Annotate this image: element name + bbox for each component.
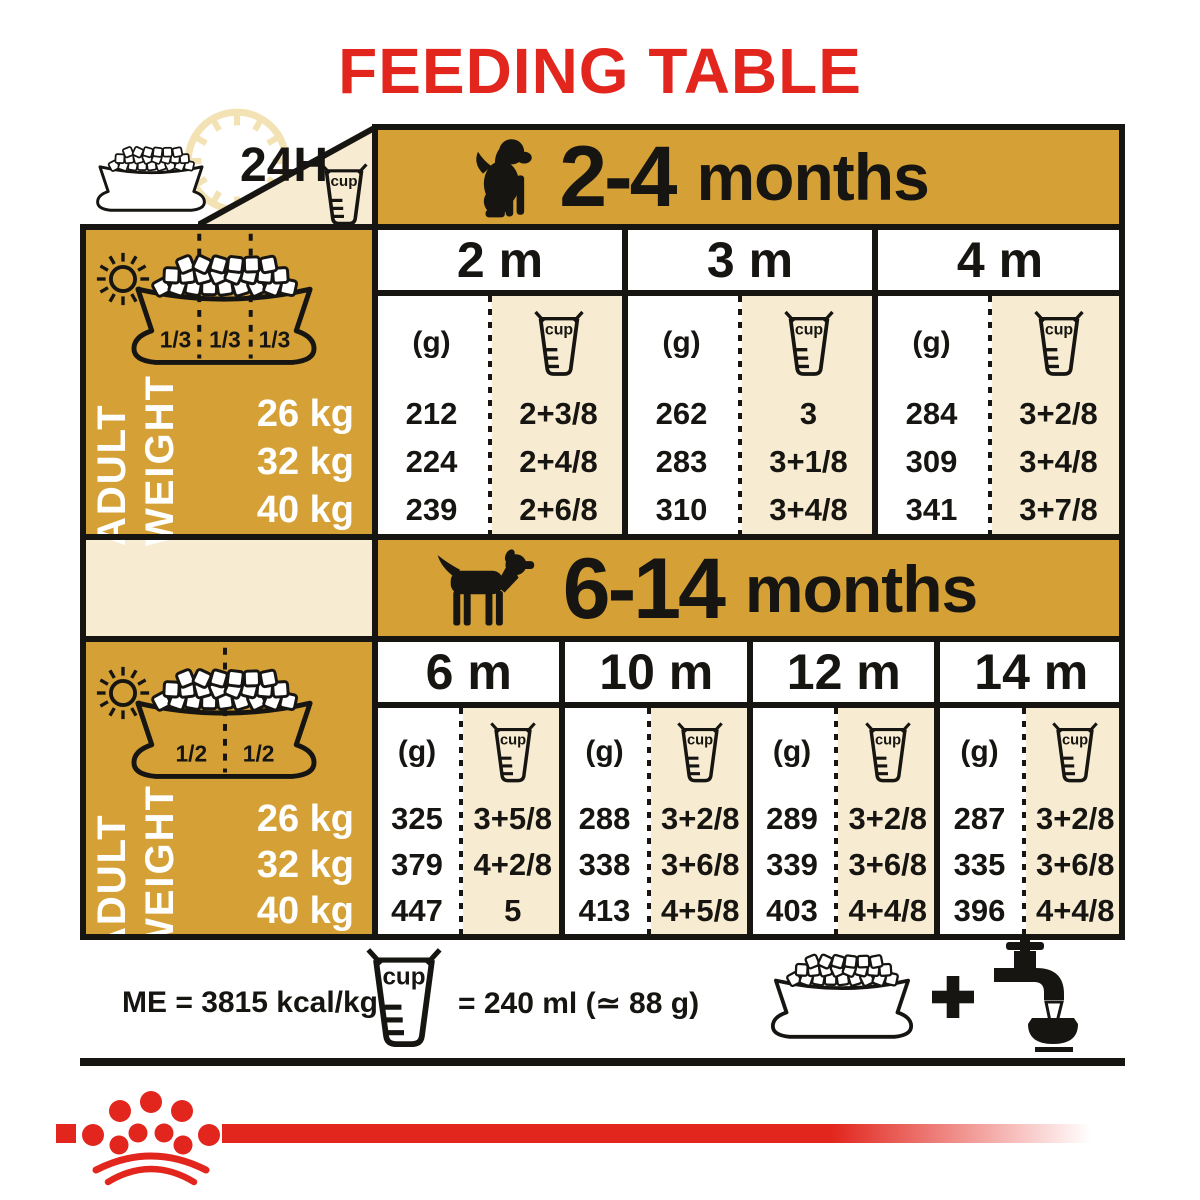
cup-equivalence-label: = 240 ml (≃ 88 g) bbox=[458, 986, 699, 1021]
cups-value: 3+5/8 bbox=[463, 796, 563, 842]
month-header-14m: 14 m bbox=[938, 642, 1126, 702]
cups-value: 3+4/8 bbox=[742, 486, 875, 534]
month-column-10m: (g)288338413 cup 3+2/83+6/84+5/8 bbox=[563, 708, 751, 934]
food-bowl-icon bbox=[84, 134, 218, 222]
section1-age-header: 2-4 months bbox=[375, 130, 1125, 224]
age-range-label: 6-14 bbox=[563, 540, 723, 639]
cups-value: 3 bbox=[742, 390, 875, 438]
cups-value: 3+2/8 bbox=[1026, 796, 1126, 842]
hours-24h-label: 24H bbox=[240, 138, 328, 193]
section1-body: (g)212224239 cup 2+3/82+4/82+6/8(g)26228… bbox=[375, 296, 1125, 534]
grams-value: 224 bbox=[375, 438, 488, 486]
feeding-table-panel: FEEDING TABLE 24H cup 2-4 months bbox=[0, 0, 1200, 1200]
measuring-cup-icon: cup bbox=[489, 720, 537, 784]
cups-value: 4+5/8 bbox=[651, 888, 751, 934]
section2-age-header: 6-14 months bbox=[375, 544, 1125, 634]
measuring-cup-icon: cup bbox=[1033, 309, 1085, 377]
age-range-label: 2-4 bbox=[559, 128, 674, 227]
month-column-4m: (g)284309341 cup 3+2/83+4/83+7/8 bbox=[875, 296, 1125, 534]
section1-weights: 26 kg32 kg40 kg bbox=[185, 390, 370, 534]
measuring-cup-icon: cup bbox=[783, 309, 835, 377]
section1-months-row: 2 m3 m4 m bbox=[375, 230, 1125, 290]
adult-weight-label: ADULT WEIGHT bbox=[90, 756, 182, 956]
svg-text:cup: cup bbox=[500, 732, 526, 748]
age-suffix-label: months bbox=[696, 139, 928, 215]
unit-grams-label: (g) bbox=[960, 735, 998, 769]
svg-text:1/2: 1/2 bbox=[243, 741, 275, 767]
svg-text:cup: cup bbox=[794, 322, 823, 339]
cups-value: 3+6/8 bbox=[651, 842, 751, 888]
adult-weight-value: 32 kg bbox=[185, 842, 370, 888]
adult-weight-value: 40 kg bbox=[185, 486, 370, 534]
grams-value: 325 bbox=[375, 796, 459, 842]
section1-left-content: 1/31/31/3 ADULT WEIGHT 26 kg32 kg40 kg bbox=[80, 224, 375, 540]
month-column-3m: (g)262283310 cup 33+1/83+4/8 bbox=[625, 296, 875, 534]
grams-value: 283 bbox=[625, 438, 738, 486]
metabolizable-energy-label: ME = 3815 kcal/kg bbox=[122, 986, 378, 1020]
adult-weight-value: 26 kg bbox=[185, 796, 370, 842]
age-suffix-label: months bbox=[745, 551, 977, 627]
month-header-10m: 10 m bbox=[563, 642, 751, 702]
cups-value: 3+2/8 bbox=[651, 796, 751, 842]
cups-value: 3+2/8 bbox=[992, 390, 1125, 438]
cups-value: 3+4/8 bbox=[992, 438, 1125, 486]
cups-value: 2+6/8 bbox=[492, 486, 625, 534]
moon-icon bbox=[323, 670, 359, 724]
svg-text:cup: cup bbox=[875, 732, 901, 748]
measuring-cup-icon: cup bbox=[533, 309, 585, 377]
brand-band-left bbox=[56, 1124, 76, 1143]
grams-value: 379 bbox=[375, 842, 459, 888]
cups-value: 3+7/8 bbox=[992, 486, 1125, 534]
puppy-icon bbox=[471, 135, 537, 219]
unit-grams-label: (g) bbox=[398, 735, 436, 769]
section2-weights: 26 kg32 kg40 kg bbox=[185, 796, 370, 934]
adult-weight-label: ADULT WEIGHT bbox=[90, 346, 182, 546]
measuring-cup-icon: cup bbox=[318, 162, 370, 226]
food-bowl-icon bbox=[746, 938, 938, 1052]
month-header-4m: 4 m bbox=[875, 230, 1125, 290]
measuring-cup-icon: cup bbox=[1051, 720, 1099, 784]
adult-weight-value: 32 kg bbox=[185, 438, 370, 486]
cups-value: 3+6/8 bbox=[1026, 842, 1126, 888]
grams-value: 447 bbox=[375, 888, 459, 934]
adult-weight-value: 40 kg bbox=[185, 888, 370, 934]
cups-value: 2+3/8 bbox=[492, 390, 625, 438]
month-column-2m: (g)212224239 cup 2+3/82+4/82+6/8 bbox=[375, 296, 625, 534]
svg-text:cup: cup bbox=[687, 732, 713, 748]
month-column-12m: (g)289339403 cup 3+2/83+6/84+4/8 bbox=[750, 708, 938, 934]
grams-value: 289 bbox=[750, 796, 834, 842]
svg-text:cup: cup bbox=[330, 173, 357, 190]
brand-band bbox=[222, 1124, 1118, 1143]
grams-value: 310 bbox=[625, 486, 738, 534]
grams-value: 396 bbox=[938, 888, 1022, 934]
svg-text:cup: cup bbox=[544, 322, 573, 339]
unit-grams-label: (g) bbox=[585, 735, 623, 769]
month-header-6m: 6 m bbox=[375, 642, 563, 702]
page-title: FEEDING TABLE bbox=[0, 34, 1200, 108]
grams-value: 212 bbox=[375, 390, 488, 438]
grams-value: 287 bbox=[938, 796, 1022, 842]
grams-value: 341 bbox=[875, 486, 988, 534]
svg-text:1/3: 1/3 bbox=[209, 327, 241, 353]
grams-value: 335 bbox=[938, 842, 1022, 888]
svg-text:1/3: 1/3 bbox=[259, 327, 291, 353]
month-column-14m: (g)287335396 cup 3+2/83+6/84+4/8 bbox=[938, 708, 1126, 934]
grams-value: 413 bbox=[563, 888, 647, 934]
cups-value: 4+4/8 bbox=[1026, 888, 1126, 934]
month-header-12m: 12 m bbox=[750, 642, 938, 702]
cups-value: 4+4/8 bbox=[838, 888, 938, 934]
month-header-2m: 2 m bbox=[375, 230, 625, 290]
measuring-cup-icon: cup bbox=[864, 720, 912, 784]
cups-value: 2+4/8 bbox=[492, 438, 625, 486]
grams-value: 288 bbox=[563, 796, 647, 842]
grams-value: 339 bbox=[750, 842, 834, 888]
grams-value: 309 bbox=[875, 438, 988, 486]
svg-text:cup: cup bbox=[1044, 322, 1073, 339]
cups-value: 5 bbox=[463, 888, 563, 934]
grams-value: 403 bbox=[750, 888, 834, 934]
grams-value: 262 bbox=[625, 390, 738, 438]
unit-grams-label: (g) bbox=[662, 326, 700, 360]
adult-weight-value: 26 kg bbox=[185, 390, 370, 438]
cups-value: 3+6/8 bbox=[838, 842, 938, 888]
month-header-3m: 3 m bbox=[625, 230, 875, 290]
cups-value: 4+2/8 bbox=[463, 842, 563, 888]
grams-value: 284 bbox=[875, 390, 988, 438]
unit-grams-label: (g) bbox=[412, 326, 450, 360]
section2-left-content: 1/21/2 ADULT WEIGHT 26 kg32 kg40 kg bbox=[80, 642, 375, 934]
unit-grams-label: (g) bbox=[912, 326, 950, 360]
measuring-cup-icon: cup bbox=[360, 946, 448, 1048]
cups-value: 3+2/8 bbox=[838, 796, 938, 842]
adult-dog-icon bbox=[423, 549, 541, 629]
plus-icon bbox=[932, 976, 974, 1018]
section2-left-spacer-cell bbox=[80, 540, 375, 636]
month-column-6m: (g)325379447 cup 3+5/84+2/85 bbox=[375, 708, 563, 934]
svg-text:cup: cup bbox=[382, 963, 425, 990]
royal-canin-crown-logo bbox=[76, 1088, 226, 1188]
measuring-cup-icon: cup bbox=[676, 720, 724, 784]
water-tap-icon bbox=[976, 936, 1080, 1052]
svg-text:cup: cup bbox=[1062, 732, 1088, 748]
grams-value: 239 bbox=[375, 486, 488, 534]
unit-grams-label: (g) bbox=[773, 735, 811, 769]
cups-value: 3+1/8 bbox=[742, 438, 875, 486]
grams-value: 338 bbox=[563, 842, 647, 888]
moon-icon bbox=[323, 256, 359, 310]
